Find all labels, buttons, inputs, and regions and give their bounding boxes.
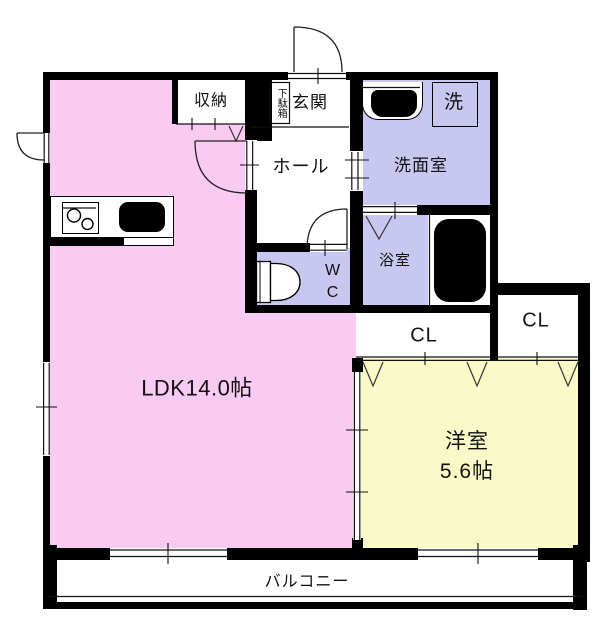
wall xyxy=(245,305,497,313)
stove-icon xyxy=(62,202,99,234)
ldk-label: LDK14.0帖 xyxy=(141,376,253,399)
wc-label-line2: C xyxy=(325,282,341,304)
entrance-door-opening xyxy=(288,71,346,81)
wc-door-opening xyxy=(310,243,347,252)
ldk-hall-door-opening xyxy=(245,140,257,190)
bathtub-icon xyxy=(434,219,486,302)
side-door-opening xyxy=(43,133,50,163)
closet-inner-label: CL xyxy=(410,326,438,347)
washroom-door-opening xyxy=(350,151,363,191)
kitchen-counter-edge xyxy=(123,237,174,246)
wall xyxy=(492,283,590,295)
wc-label: W C xyxy=(325,260,341,304)
western-room-name: 洋室 xyxy=(440,427,494,457)
floorplan: 収納 下駄箱 玄関 ホール 洗面室 洗 浴室 W C CL CL LDK14.0… xyxy=(0,0,613,638)
kitchen-sink-icon xyxy=(119,202,165,232)
window-balcony-western xyxy=(418,548,538,560)
balcony-wall xyxy=(43,602,587,609)
entrance-label: 玄関 xyxy=(292,94,328,112)
kitchen-counter-edge xyxy=(50,237,123,246)
western-room-size: 5.6帖 xyxy=(440,457,494,487)
western-room-label: 洋室 5.6帖 xyxy=(440,427,494,487)
shoe-box-label: 下駄箱 xyxy=(275,88,286,118)
closet-outer-label: CL xyxy=(522,311,550,332)
side-door-swing-arc xyxy=(17,133,44,160)
bathroom-label: 浴室 xyxy=(379,253,411,269)
storage-label: 収納 xyxy=(194,94,228,111)
washbasin-bowl-icon xyxy=(371,90,417,117)
window-left xyxy=(43,362,50,456)
ldk-western-partition xyxy=(353,372,361,540)
window-balcony-ldk xyxy=(110,548,227,560)
wall xyxy=(250,243,310,252)
balcony-label: バルコニー xyxy=(265,575,350,592)
wall xyxy=(350,72,363,313)
entrance-door-swing-arc xyxy=(294,27,342,72)
washroom-label: 洗面室 xyxy=(394,157,448,175)
wall xyxy=(578,283,590,562)
wall xyxy=(245,78,272,141)
wall xyxy=(490,72,498,360)
partition-post xyxy=(352,358,363,372)
wc-label-line1: W xyxy=(325,260,341,282)
hall-label: ホール xyxy=(273,158,330,177)
balcony-wall xyxy=(573,545,587,610)
balcony-wall xyxy=(43,545,57,609)
bathroom-door-opening xyxy=(363,205,417,215)
room-hall-floor xyxy=(250,124,352,248)
washer-space-label: 洗 xyxy=(444,93,464,113)
wall xyxy=(172,78,178,124)
